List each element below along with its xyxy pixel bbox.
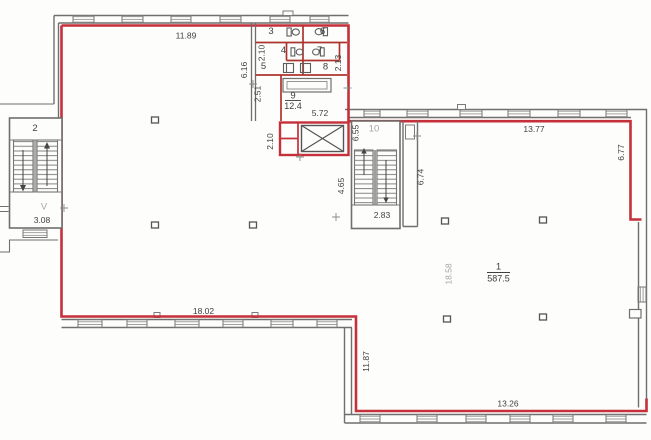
dim-corridor: 6.74	[415, 168, 425, 185]
window	[510, 415, 530, 424]
dim-top-left: 11.89	[176, 30, 197, 40]
dim-stair10-landing: 2.83	[374, 210, 391, 220]
wall-bottom-section-left-faces	[345, 328, 352, 424]
window	[417, 415, 437, 424]
room-4-number: 4	[281, 45, 286, 56]
vent-bump	[458, 105, 466, 110]
column	[540, 314, 547, 320]
window	[606, 110, 627, 118]
toilet-left-wall	[252, 23, 256, 121]
window	[23, 230, 47, 238]
dim-elevator: 2.10	[265, 133, 275, 150]
window	[317, 320, 337, 328]
stairwell-2	[0, 118, 62, 252]
stair-flight	[377, 150, 397, 205]
window	[223, 320, 243, 328]
dim-stair10-well: 4.65	[336, 177, 346, 194]
toilet-tank-icon	[287, 28, 291, 36]
v-mark: V	[41, 202, 48, 213]
dim-toilet-width: 5.72	[312, 108, 329, 118]
window	[270, 16, 290, 24]
dim-bottom-right: 13.26	[497, 398, 519, 408]
dim-bottom-left: 18.02	[193, 306, 215, 316]
column	[540, 217, 547, 223]
dim-hall-depth: 18.58	[443, 263, 453, 285]
windows-top-left-wall	[73, 16, 329, 24]
dim-step-wall: 11.87	[361, 351, 371, 372]
tick-cross	[332, 213, 340, 221]
room-1-number: 1	[496, 262, 501, 273]
room-9-number: 9	[290, 91, 295, 102]
dim-top-right: 13.77	[523, 124, 545, 134]
window	[558, 110, 580, 118]
vent-bumps	[154, 11, 466, 318]
window	[466, 415, 486, 424]
window	[127, 320, 147, 328]
column	[152, 222, 159, 228]
room-9-area: 12.4	[284, 101, 302, 111]
toilet-tank-icon	[291, 48, 295, 56]
window	[553, 415, 573, 424]
window	[122, 16, 143, 24]
window	[310, 16, 329, 24]
wall-bottom-right-faces	[345, 415, 647, 424]
window	[360, 415, 380, 424]
dim-toilet-height: 6.16	[239, 61, 249, 78]
windows-bottom-right-wall	[360, 415, 626, 424]
window	[220, 16, 241, 24]
sink-icon	[301, 64, 311, 73]
vent-bump	[283, 11, 293, 16]
window	[73, 16, 94, 24]
window	[78, 320, 102, 328]
column	[250, 222, 257, 228]
room-7-number: 7	[317, 45, 322, 56]
toilet-bowl-icon	[292, 29, 299, 35]
floor-plan: 2 3 6 4 7 5 8 9 12.4 10 1 587.5 V 11.89 …	[0, 0, 651, 440]
elevator-block	[280, 123, 349, 156]
dim-stair10-upper: 6.55	[350, 124, 360, 141]
window	[638, 287, 647, 302]
entry-steps	[0, 240, 58, 252]
dim-right-wall: 6.77	[616, 144, 626, 161]
windows-top-right-wall	[364, 110, 627, 118]
dim-toilet-lobby: 2.51	[252, 85, 262, 102]
floor-plan-canvas: 2 3 6 4 7 5 8 9 12.4 10 1 587.5 V 11.89 …	[0, 0, 651, 440]
outer-walls	[0, 16, 647, 424]
room-8-number: 8	[323, 62, 328, 73]
room-5-number: 5	[261, 61, 266, 72]
column	[442, 218, 449, 224]
room-3-number: 3	[268, 26, 273, 37]
window	[364, 110, 380, 118]
window	[508, 110, 530, 118]
window	[460, 110, 482, 118]
corridor-door	[406, 125, 415, 139]
room-2-number: 2	[32, 123, 37, 134]
room-10-number: 10	[369, 124, 380, 135]
tick-cross	[344, 84, 352, 92]
toilet-bowl-icon	[296, 49, 303, 55]
dim-toilet-inner-right: 2.13	[333, 54, 343, 71]
dim-toilet-inner-left: 2.10	[256, 44, 266, 61]
window	[171, 16, 191, 24]
dim-stair2-width: 3.08	[34, 215, 51, 225]
window	[175, 320, 199, 328]
window	[407, 110, 428, 118]
column	[444, 316, 451, 322]
window	[271, 320, 293, 328]
room-1-area: 587.5	[487, 273, 510, 283]
entry-marks	[0, 207, 9, 212]
column	[152, 117, 159, 123]
sink-icon	[284, 64, 294, 73]
windows-bottom-left-wall	[78, 320, 337, 328]
room-6-number: 6	[320, 26, 325, 37]
wall-bottom-left-faces	[62, 320, 353, 328]
wall-pier	[630, 310, 642, 319]
window	[606, 415, 626, 424]
